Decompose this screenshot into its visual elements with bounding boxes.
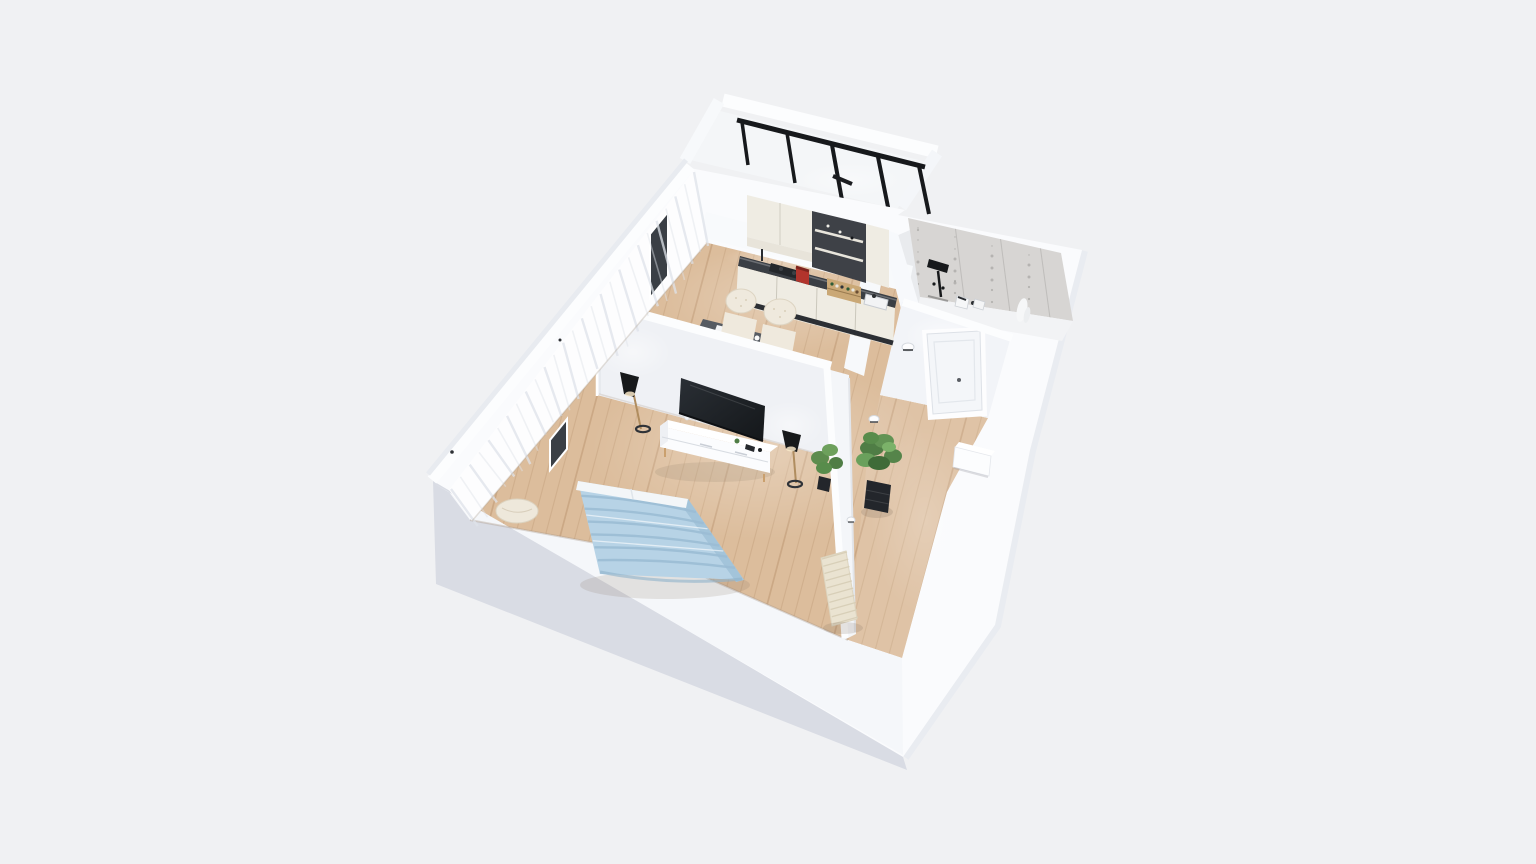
table-dish	[755, 336, 760, 341]
kitchen-right-cabinet	[866, 224, 889, 288]
wall-sconce	[847, 517, 855, 523]
entry-door	[922, 327, 987, 420]
shower-knob	[932, 282, 935, 285]
curtain-rod-hook	[450, 450, 454, 454]
decor-plant	[735, 439, 740, 444]
pouf	[496, 499, 538, 523]
door-handle	[957, 378, 961, 382]
decor-item	[758, 448, 762, 452]
lamp-bulb-glow	[625, 392, 635, 397]
render-canvas	[0, 0, 1536, 864]
shower-knob	[941, 286, 944, 289]
wall-sconce	[869, 416, 879, 423]
lamp-bulb-glow	[786, 447, 796, 452]
curtain-rod-hook	[559, 339, 562, 342]
floorplan-3d-render	[0, 0, 1536, 864]
wall-sconce	[902, 343, 914, 351]
